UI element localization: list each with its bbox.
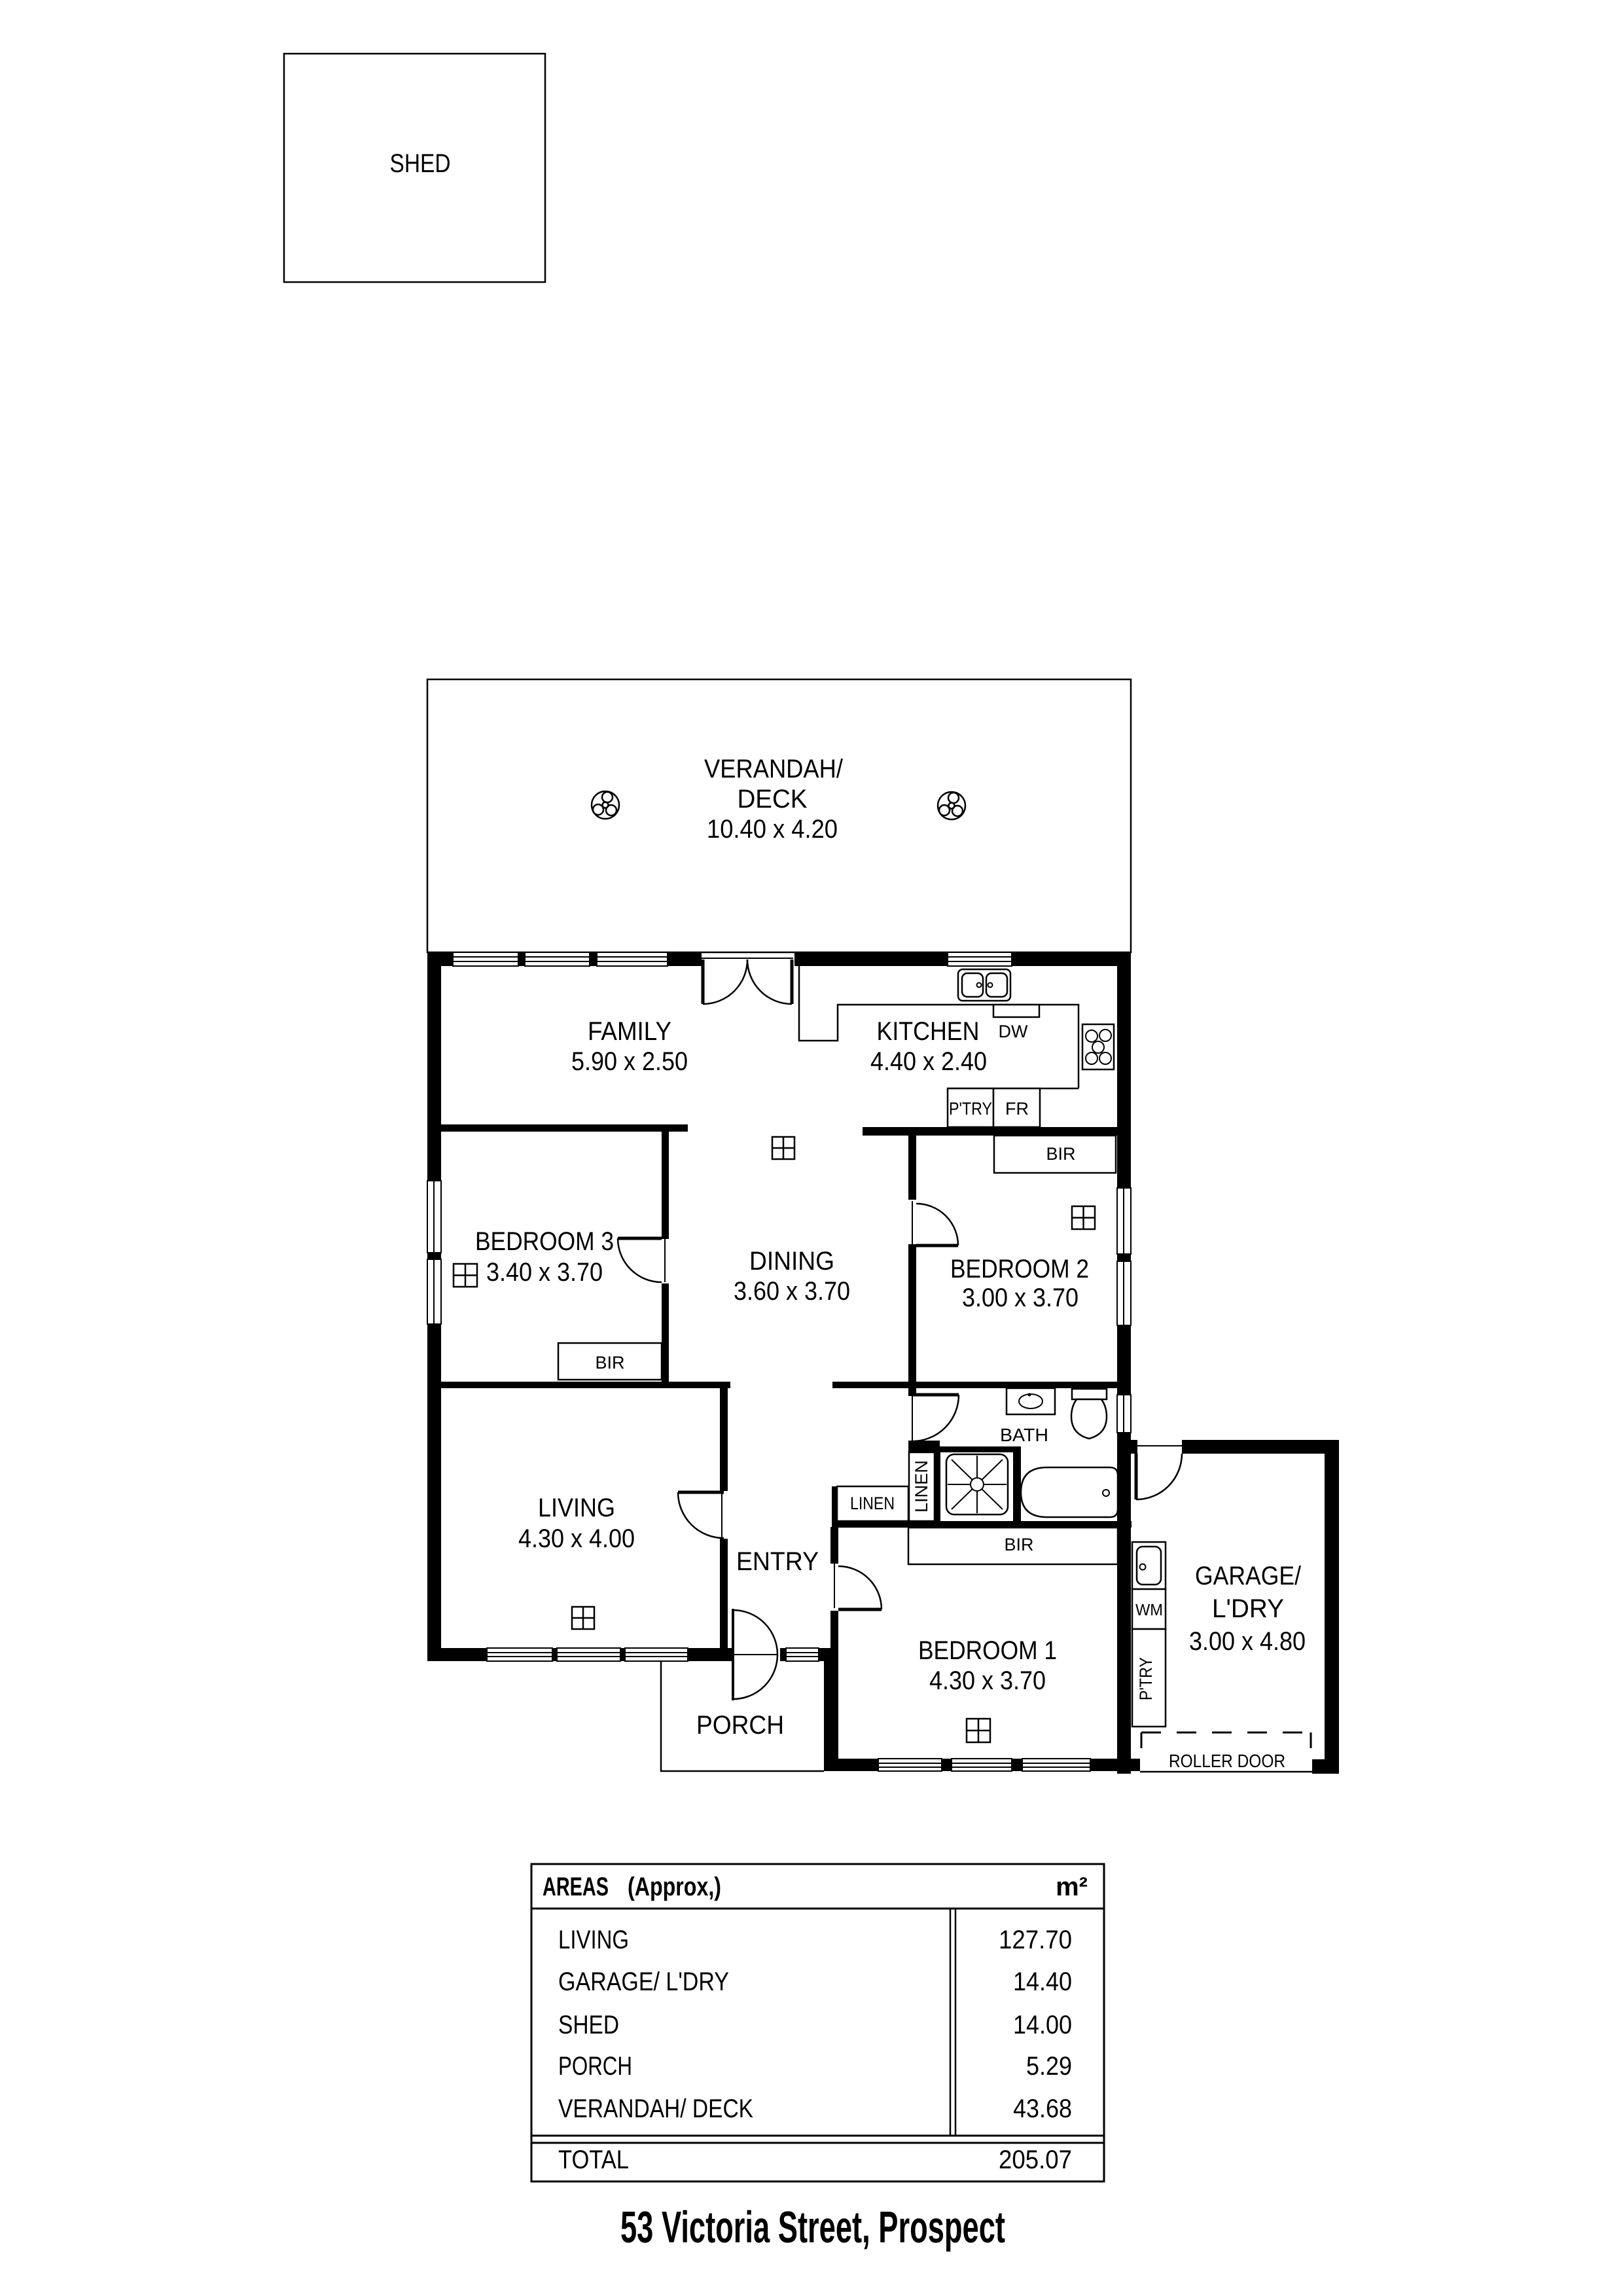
- svg-text:LIVING: LIVING: [558, 1926, 629, 1954]
- svg-text:PORCH: PORCH: [558, 2052, 632, 2081]
- svg-text:127.70: 127.70: [999, 1926, 1072, 1954]
- svg-text:VERANDAH/ DECK: VERANDAH/ DECK: [558, 2094, 753, 2123]
- svg-text:3.60 x 3.70: 3.60 x 3.70: [734, 1277, 850, 1306]
- svg-text:TOTAL: TOTAL: [558, 2145, 629, 2174]
- svg-text:5.90 x 2.50: 5.90 x 2.50: [571, 1047, 688, 1076]
- svg-text:3.00 x 3.70: 3.00 x 3.70: [962, 1283, 1079, 1312]
- svg-text:LINEN: LINEN: [850, 1494, 895, 1513]
- svg-text:FR: FR: [1005, 1099, 1029, 1119]
- svg-text:DW: DW: [999, 1022, 1028, 1041]
- svg-text:WM: WM: [1135, 1601, 1163, 1619]
- svg-text:3.40 x 3.70: 3.40 x 3.70: [486, 1258, 603, 1287]
- svg-text:ENTRY: ENTRY: [736, 1547, 819, 1576]
- svg-text:KITCHEN: KITCHEN: [877, 1017, 980, 1046]
- svg-text:m²: m²: [1056, 1873, 1088, 1901]
- svg-text:BIR: BIR: [1046, 1144, 1075, 1164]
- svg-text:SHED: SHED: [558, 2011, 619, 2039]
- svg-text:53 Victoria Street, Prospect: 53 Victoria Street, Prospect: [620, 2202, 1005, 2252]
- svg-text:GARAGE/ L'DRY: GARAGE/ L'DRY: [558, 1967, 729, 1996]
- svg-text:P'TRY: P'TRY: [1136, 1657, 1156, 1700]
- svg-text:FAMILY: FAMILY: [588, 1017, 671, 1046]
- svg-text:SHED: SHED: [390, 149, 451, 178]
- svg-text:14.40: 14.40: [1013, 1967, 1072, 1996]
- svg-text:5.29: 5.29: [1026, 2052, 1072, 2081]
- svg-text:LINEN: LINEN: [912, 1460, 931, 1513]
- svg-text:BEDROOM 3: BEDROOM 3: [475, 1227, 614, 1256]
- svg-text:BEDROOM 2: BEDROOM 2: [950, 1255, 1089, 1283]
- svg-text:GARAGE/: GARAGE/: [1195, 1562, 1302, 1590]
- svg-text:4.40 x 2.40: 4.40 x 2.40: [870, 1047, 987, 1076]
- svg-text:3.00 x 4.80: 3.00 x 4.80: [1189, 1627, 1306, 1656]
- svg-text:4.30 x 3.70: 4.30 x 3.70: [929, 1666, 1046, 1695]
- svg-text:BEDROOM 1: BEDROOM 1: [918, 1636, 1057, 1665]
- svg-text:DINING: DINING: [749, 1247, 834, 1276]
- svg-text:BIR: BIR: [595, 1353, 624, 1372]
- svg-text:L'DRY: L'DRY: [1212, 1594, 1284, 1623]
- svg-text:10.40 x 4.20: 10.40 x 4.20: [707, 815, 838, 844]
- svg-text:ROLLER DOOR: ROLLER DOOR: [1169, 1751, 1285, 1771]
- svg-text:PORCH: PORCH: [696, 1711, 784, 1740]
- svg-text:4.30 x 4.00: 4.30 x 4.00: [518, 1524, 635, 1553]
- svg-text:205.07: 205.07: [999, 2145, 1072, 2174]
- svg-text:BIR: BIR: [1004, 1535, 1033, 1554]
- svg-text:DECK: DECK: [738, 785, 808, 814]
- svg-text:43.68: 43.68: [1013, 2094, 1072, 2123]
- svg-text:LIVING: LIVING: [538, 1494, 615, 1522]
- svg-text:VERANDAH/: VERANDAH/: [704, 755, 844, 783]
- svg-text:(Approx,): (Approx,): [628, 1873, 721, 1901]
- svg-text:AREAS: AREAS: [543, 1873, 609, 1901]
- svg-text:BATH: BATH: [1000, 1425, 1048, 1445]
- svg-text:14.00: 14.00: [1013, 2011, 1072, 2039]
- svg-text:P'TRY: P'TRY: [949, 1099, 992, 1119]
